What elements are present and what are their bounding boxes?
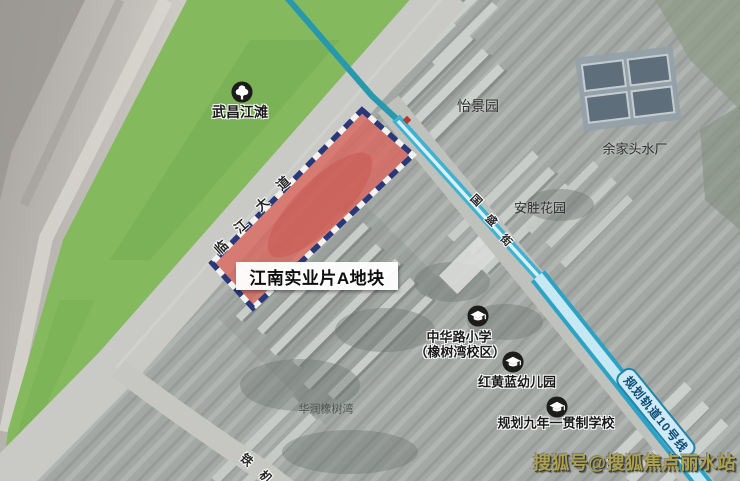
water-plant-basins xyxy=(575,46,681,131)
place-label-yujiatou-water-plant: 余家头水厂 xyxy=(602,143,667,158)
map-container: 武昌江滩 怡景园 余家头水厂 安胜花园 华润橡树湾 中华路小学 （橡树湾校区） … xyxy=(0,0,740,481)
graduation-cap-icon-planned-school xyxy=(546,396,567,417)
plot-label: 江南实业片A地块 xyxy=(236,262,398,290)
place-label-planned-nine-year-school: 规划九年一贯制学校 xyxy=(497,417,614,432)
tree-icon xyxy=(231,81,252,102)
place-label-ryb-kindergarten: 红黄蓝幼儿园 xyxy=(478,376,556,391)
map-artwork xyxy=(0,0,740,481)
graduation-cap-icon-kindergarten xyxy=(502,351,523,372)
place-label-wuchang-beach: 武昌江滩 xyxy=(212,104,268,120)
watermark: 搜狐号@搜狐焦点丽水站 xyxy=(533,449,736,475)
graduation-cap-icon-zhonghua xyxy=(467,305,488,326)
place-label-zhonghua-primary-line1: 中华路小学 xyxy=(426,331,491,346)
place-label-zhonghua-primary-line2: （橡树湾校区） xyxy=(414,346,505,361)
place-label-yijing-garden: 怡景园 xyxy=(457,98,499,114)
place-label-huarun-oak-bay: 华润橡树湾 xyxy=(299,404,354,417)
place-label-ansheng-garden: 安胜花园 xyxy=(514,202,566,217)
